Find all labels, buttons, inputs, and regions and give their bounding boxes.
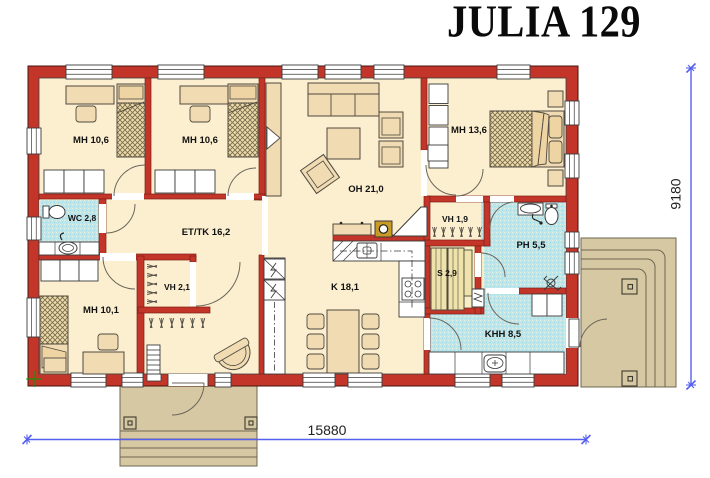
svg-text:JULIA 129: JULIA 129 bbox=[447, 0, 641, 47]
svg-text:OH 21,0: OH 21,0 bbox=[348, 184, 383, 195]
svg-text:ET/TK 16,2: ET/TK 16,2 bbox=[182, 227, 231, 238]
svg-text:VH 2,1: VH 2,1 bbox=[164, 282, 190, 292]
svg-text:WC 2,8: WC 2,8 bbox=[68, 213, 97, 223]
svg-text:MH 10,6: MH 10,6 bbox=[182, 135, 218, 146]
svg-text:15880: 15880 bbox=[308, 422, 347, 438]
svg-text:VH 1,9: VH 1,9 bbox=[442, 214, 468, 224]
svg-text:PH 5,5: PH 5,5 bbox=[516, 240, 546, 251]
svg-text:MH 13,6: MH 13,6 bbox=[451, 125, 487, 136]
svg-text:K 18,1: K 18,1 bbox=[331, 282, 360, 293]
svg-text:S 2,9: S 2,9 bbox=[437, 268, 457, 278]
svg-text:9180: 9180 bbox=[668, 178, 684, 209]
svg-text:MH 10,6: MH 10,6 bbox=[73, 135, 109, 146]
svg-text:MH 10,1: MH 10,1 bbox=[83, 305, 120, 316]
svg-text:KHH 8,5: KHH 8,5 bbox=[485, 329, 522, 340]
